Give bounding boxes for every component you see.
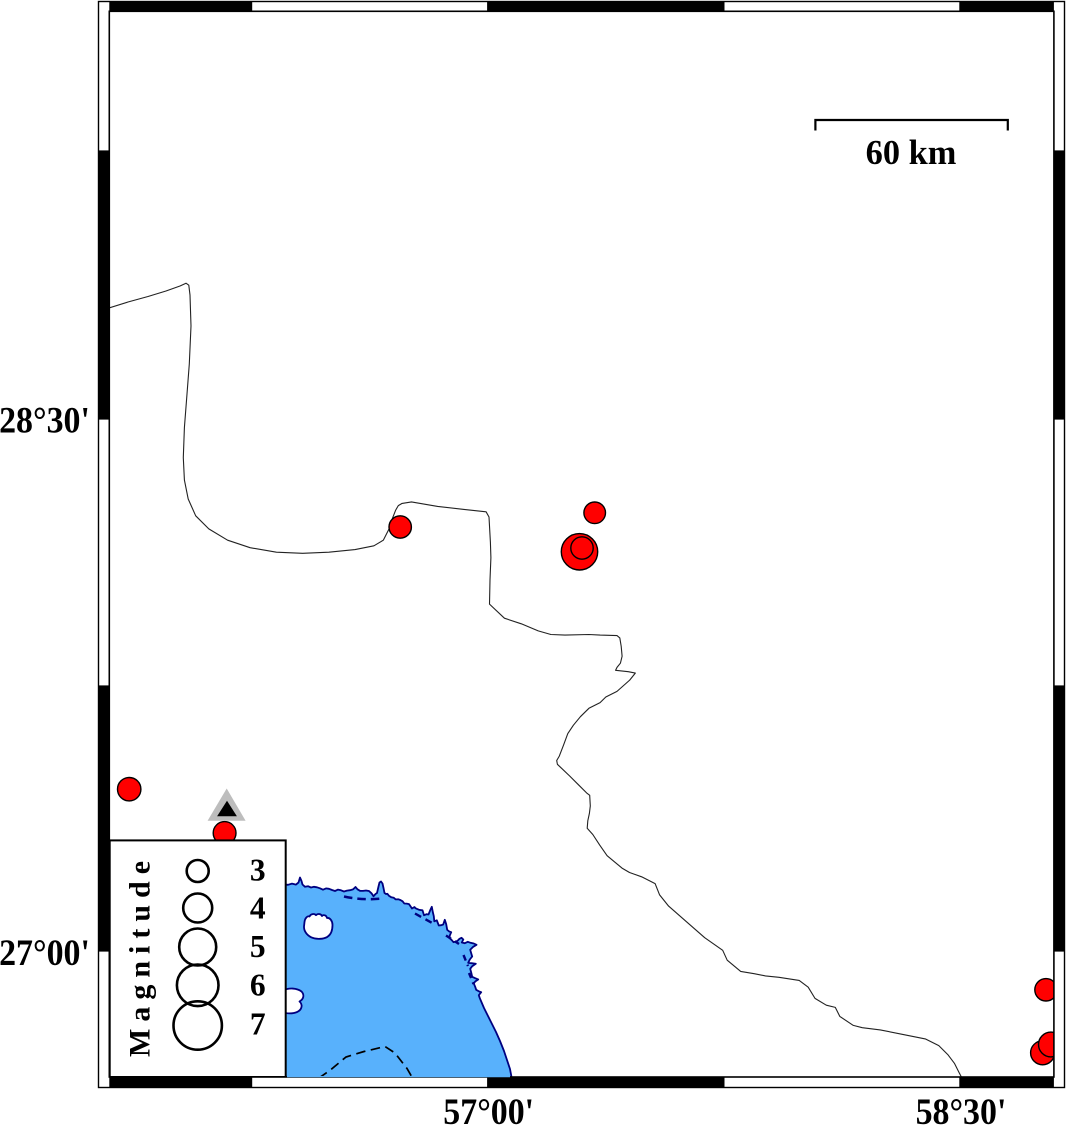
svg-text:28°30': 28°30' bbox=[0, 400, 90, 441]
svg-text:60 km: 60 km bbox=[866, 133, 957, 172]
svg-text:Magnitude: Magnitude bbox=[124, 854, 157, 1057]
svg-text:58°30': 58°30' bbox=[916, 1091, 1007, 1126]
svg-text:7: 7 bbox=[250, 1007, 266, 1042]
svg-text:5: 5 bbox=[250, 929, 266, 964]
svg-text:57°00': 57°00' bbox=[443, 1091, 534, 1126]
svg-text:6: 6 bbox=[250, 968, 266, 1003]
svg-text:27°00': 27°00' bbox=[0, 932, 90, 973]
svg-text:3: 3 bbox=[250, 853, 266, 888]
svg-text:4: 4 bbox=[250, 891, 266, 926]
